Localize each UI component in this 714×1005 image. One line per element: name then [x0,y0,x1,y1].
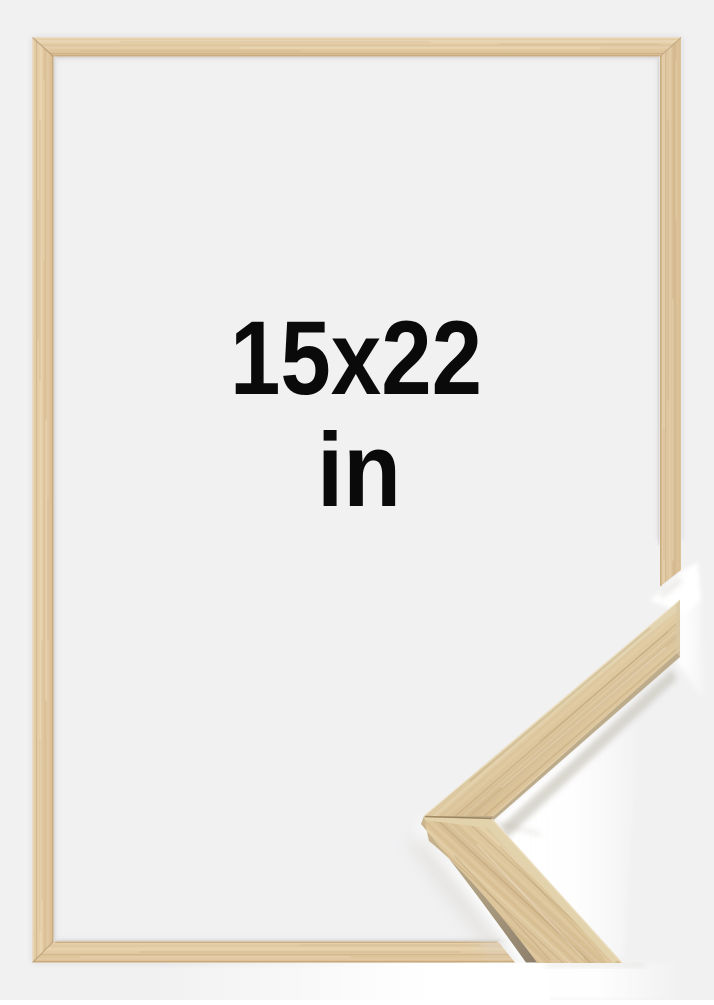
svg-text:in: in [317,412,401,529]
svg-text:15x22: 15x22 [230,300,482,417]
